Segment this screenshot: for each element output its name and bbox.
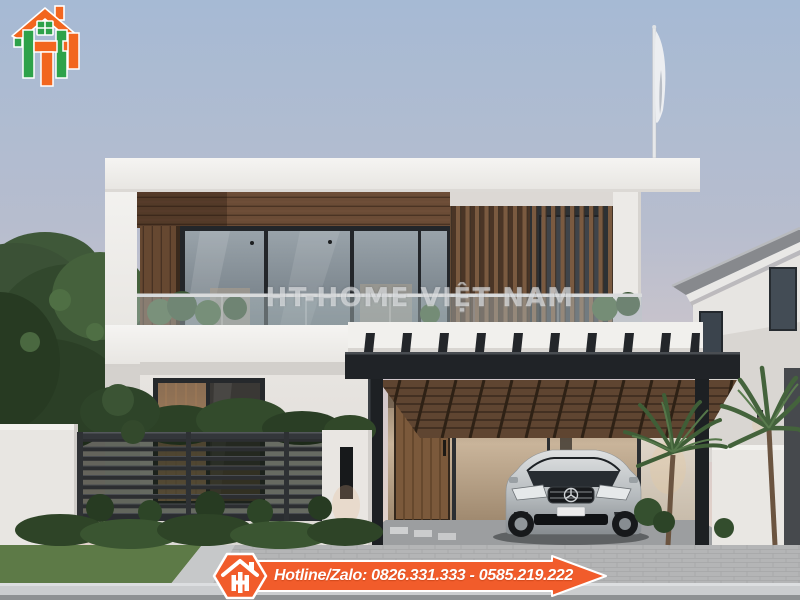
pergola-beam bbox=[345, 352, 740, 379]
watermark-text: HT-HOME VIỆT NAM bbox=[240, 283, 600, 313]
logo-monogram bbox=[14, 30, 79, 86]
hotline-banner: Hotline/Zalo: 0826.331.333 - 0585.219.22… bbox=[210, 552, 610, 600]
hotline-text: Hotline/Zalo: 0826.331.333 - 0585.219.22… bbox=[274, 552, 573, 600]
carport-roof-slab bbox=[348, 322, 703, 352]
license-plate bbox=[557, 507, 585, 516]
right-column bbox=[613, 192, 641, 305]
grass bbox=[0, 545, 202, 585]
roof-slab bbox=[105, 158, 700, 192]
ht-home-logo bbox=[6, 2, 88, 98]
rendering-canvas: HT-HOME VIỆT NAM Hotline/Zalo: 0826.331.… bbox=[0, 0, 800, 600]
windshield bbox=[527, 471, 620, 487]
neighbor-window bbox=[770, 268, 796, 330]
logo-window bbox=[37, 21, 53, 35]
